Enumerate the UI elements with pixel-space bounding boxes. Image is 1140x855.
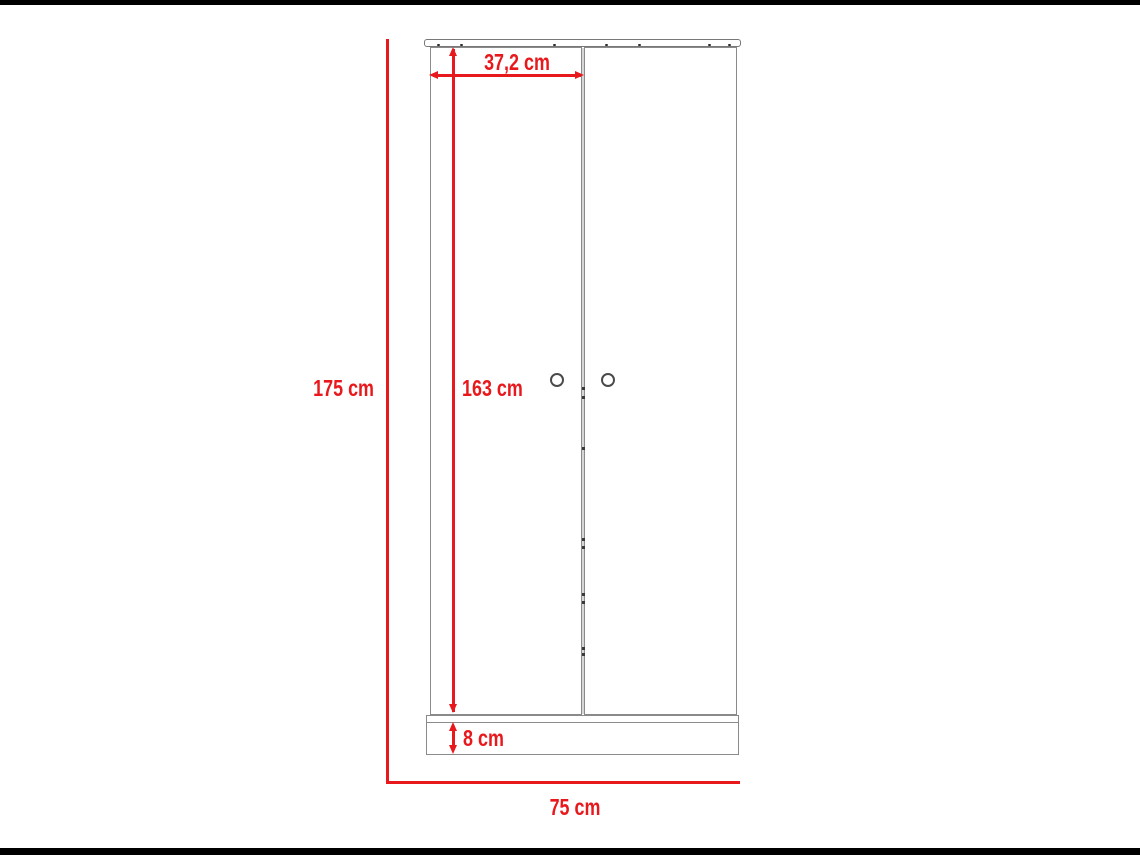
arrowhead-down-icon bbox=[449, 745, 457, 754]
arrowhead-up-icon bbox=[449, 47, 457, 56]
arrowhead-down-icon bbox=[449, 704, 457, 713]
dowel-mark bbox=[553, 44, 556, 46]
label-door-height: 163 cm bbox=[462, 377, 523, 400]
label-door-width: 37,2 cm bbox=[470, 51, 564, 74]
arrowhead-right-icon bbox=[575, 71, 584, 79]
door-divider bbox=[582, 48, 584, 714]
hinge-mark bbox=[582, 396, 585, 399]
hinge-mark bbox=[582, 538, 585, 541]
hinge-mark bbox=[582, 653, 585, 656]
hinge-mark bbox=[582, 647, 585, 650]
hinge-mark bbox=[582, 601, 585, 604]
hinge-mark bbox=[582, 593, 585, 596]
dowel-mark bbox=[605, 44, 608, 46]
letterbox-top-bar bbox=[0, 0, 1140, 5]
label-total-height: 175 cm bbox=[280, 377, 374, 400]
letterbox-bottom-bar bbox=[0, 848, 1140, 855]
arrowhead-up-icon bbox=[449, 722, 457, 731]
dowel-mark bbox=[728, 44, 731, 46]
label-base-height: 8 cm bbox=[463, 727, 504, 750]
right-door-handle-icon bbox=[601, 373, 615, 387]
hinge-mark bbox=[582, 387, 585, 390]
dimension-line-door-height bbox=[452, 49, 455, 712]
dowel-mark bbox=[437, 44, 440, 46]
hinge-mark bbox=[582, 447, 585, 450]
dowel-mark bbox=[638, 44, 641, 46]
label-total-width: 75 cm bbox=[528, 796, 622, 819]
dimension-line-total-width bbox=[386, 781, 740, 784]
dimension-line-total-height bbox=[386, 39, 389, 784]
wardrobe-top-panel bbox=[424, 39, 741, 47]
diagram-canvas: 175 cm 163 cm 37,2 cm 8 cm 75 cm bbox=[0, 0, 1140, 855]
left-door-handle-icon bbox=[550, 373, 564, 387]
dowel-mark bbox=[708, 44, 711, 46]
dowel-mark bbox=[460, 44, 463, 46]
arrowhead-left-icon bbox=[429, 71, 438, 79]
hinge-mark bbox=[582, 546, 585, 549]
